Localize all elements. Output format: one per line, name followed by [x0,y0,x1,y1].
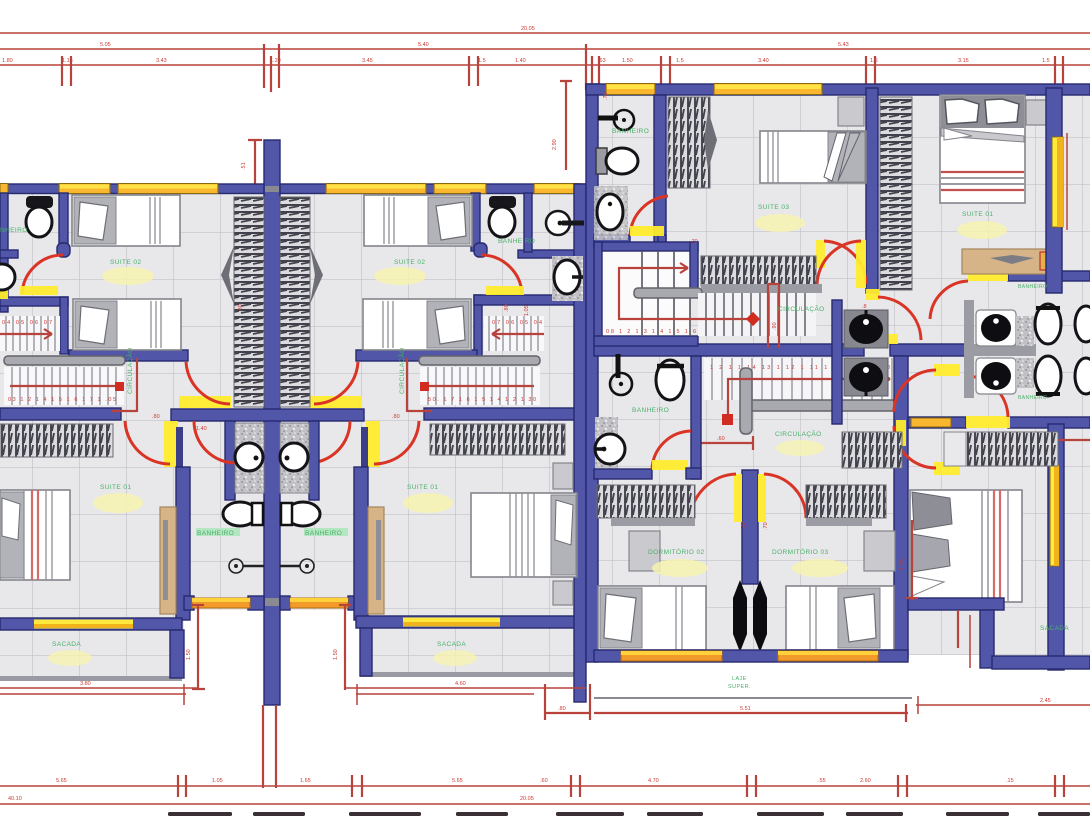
svg-text:40.10: 40.10 [8,796,22,802]
svg-text:NHEIRO: NHEIRO [0,227,28,234]
svg-text:BANHEIRO: BANHEIRO [498,238,535,245]
svg-text:CIRCULAÇÃO: CIRCULAÇÃO [778,304,825,313]
svg-text:.80: .80 [392,414,400,420]
svg-text:1.5: 1.5 [1042,58,1050,64]
svg-text:3.40: 3.40 [758,58,769,64]
svg-text:CIRCULAÇÃO: CIRCULAÇÃO [775,429,822,438]
svg-text:DORMITÓRIO 02: DORMITÓRIO 02 [648,547,704,556]
svg-text:.80: .80 [238,304,244,312]
svg-text:.15: .15 [1006,778,1014,784]
svg-text:SUITE 01: SUITE 01 [962,211,993,218]
svg-text:.8: .8 [862,304,867,310]
svg-text:SACADA: SACADA [52,641,81,648]
svg-text:1.50: 1.50 [622,58,633,64]
svg-text:BANHEIRO: BANHEIRO [305,530,342,537]
svg-text:SUITE 02: SUITE 02 [394,259,425,266]
svg-text:5.40: 5.40 [418,42,429,48]
svg-text:1.40: 1.40 [515,58,526,64]
svg-text:BANHEIRO: BANHEIRO [1018,395,1047,401]
svg-text:50. 1 7 1 6 1 5 1 4 1 2 1 30: 50. 1 7 1 6 1 5 1 4 1 2 1 30 [428,397,536,403]
svg-text:20.05: 20.05 [520,796,534,802]
svg-text:BANHEIRO: BANHEIRO [1018,284,1047,290]
svg-text:5.65: 5.65 [56,778,67,784]
svg-text:4.70: 4.70 [648,778,659,784]
svg-text:20.05: 20.05 [521,26,535,32]
svg-text:2.45: 2.45 [1040,698,1051,704]
svg-text:5.51: 5.51 [740,706,751,712]
svg-text:.75: .75 [603,92,609,100]
svg-text:.90: .90 [772,322,778,330]
svg-text:1.80: 1.80 [2,58,13,64]
svg-text:.70: .70 [690,239,698,245]
svg-text:.60: .60 [717,436,725,442]
svg-text:1.50: 1.50 [186,649,192,660]
svg-text:1.5: 1.5 [478,58,486,64]
svg-text:3.80: 3.80 [80,681,91,687]
svg-text:1.65: 1.65 [300,778,311,784]
svg-text:DORMITÓRIO 03: DORMITÓRIO 03 [772,547,828,556]
svg-text:5.05: 5.05 [100,42,111,48]
svg-text:08 1 2 1 3 1 4 1 5 1 6: 08 1 2 1 3 1 4 1 5 1 6 [606,329,696,335]
svg-text:1.40: 1.40 [196,426,207,432]
svg-text:SACADA: SACADA [1040,625,1069,632]
svg-text:SUITE 03: SUITE 03 [758,204,789,211]
svg-text:1.55: 1.55 [900,559,906,570]
svg-text:4.60: 4.60 [455,681,466,687]
svg-text:CIRCULAÇÃO: CIRCULAÇÃO [125,347,134,394]
svg-text:BANHEIRO: BANHEIRO [612,128,649,135]
svg-text:3.15: 3.15 [958,58,969,64]
svg-text:SACADA: SACADA [437,641,466,648]
svg-text:.70: .70 [741,522,747,530]
svg-text:.80: .80 [152,414,160,420]
svg-text:.80: .80 [504,304,510,312]
svg-text:.70: .70 [763,522,769,530]
svg-text:04 05 06 07: 04 05 06 07 [2,320,52,326]
svg-text:.55: .55 [818,778,826,784]
svg-text:3.45: 3.45 [362,58,373,64]
svg-text:1.05: 1.05 [524,305,530,316]
svg-text:BANHEIRO: BANHEIRO [197,530,234,537]
svg-text:3.43: 3.43 [156,58,167,64]
svg-text:SUITE 02: SUITE 02 [110,259,141,266]
svg-text:1.50: 1.50 [333,649,339,660]
svg-text:5.65: 5.65 [452,778,463,784]
svg-text:.60: .60 [540,778,548,784]
svg-text:BANHEIRO: BANHEIRO [632,407,669,414]
svg-text:1.5: 1.5 [676,58,684,64]
svg-text:1.05: 1.05 [212,778,223,784]
svg-text:.51: .51 [241,162,247,170]
svg-text:SUPER.: SUPER. [728,684,751,690]
svg-text:2.90: 2.90 [552,139,558,150]
svg-text:2.60: 2.60 [860,778,871,784]
svg-text:1.5: 1.5 [870,58,878,64]
svg-text:SUITE 01: SUITE 01 [100,484,131,491]
svg-text:5.43: 5.43 [838,42,849,48]
svg-text:CIRCULAÇÃO: CIRCULAÇÃO [397,347,406,394]
svg-text:LAJE: LAJE [732,676,747,682]
svg-text:07 06 05 04: 07 06 05 04 [492,320,542,326]
svg-text:SUITE 01: SUITE 01 [407,484,438,491]
svg-text:.80: .80 [558,706,566,712]
